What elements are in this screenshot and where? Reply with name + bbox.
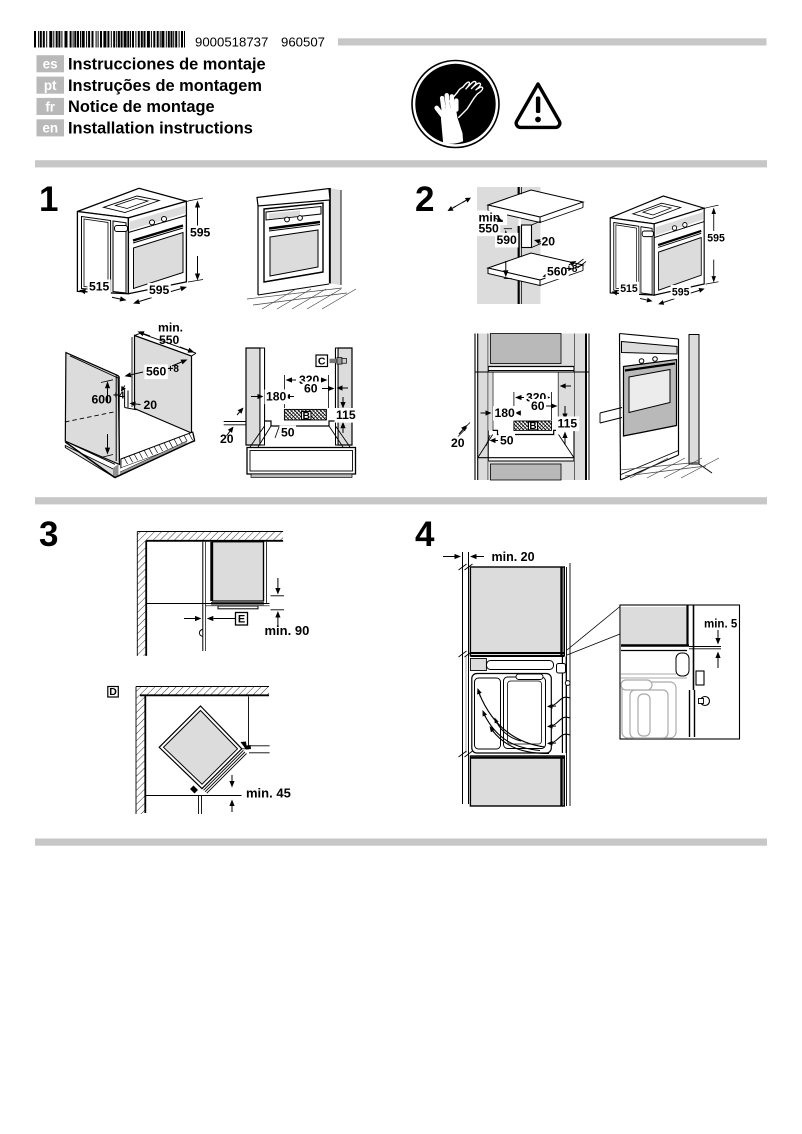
svg-text:180: 180 <box>266 390 287 404</box>
svg-text:Instruções de montagem: Instruções de montagem <box>68 77 262 95</box>
svg-text:595: 595 <box>707 232 725 245</box>
svg-text:Notice de montage: Notice de montage <box>68 98 215 116</box>
svg-text:+8: +8 <box>566 264 578 275</box>
svg-text:fr: fr <box>45 99 55 114</box>
svg-text:4: 4 <box>415 515 435 554</box>
svg-text:550: 550 <box>159 333 180 347</box>
svg-text:es: es <box>43 57 58 72</box>
svg-text:515: 515 <box>89 280 110 294</box>
svg-text:560: 560 <box>146 365 167 379</box>
svg-text:20: 20 <box>542 235 556 249</box>
svg-text:2: 2 <box>415 180 434 219</box>
svg-text:50: 50 <box>281 426 295 440</box>
svg-text:9000518737: 9000518737 <box>195 35 268 50</box>
svg-text:Installation instructions: Installation instructions <box>68 119 253 137</box>
svg-text:B: B <box>303 410 311 422</box>
svg-text:+8: +8 <box>168 364 180 375</box>
svg-text:pt: pt <box>44 78 57 93</box>
svg-text:595: 595 <box>149 283 170 297</box>
svg-text:20: 20 <box>451 436 465 450</box>
svg-text:115: 115 <box>558 417 578 431</box>
svg-text:180: 180 <box>495 406 516 420</box>
svg-text:60: 60 <box>531 399 545 413</box>
svg-text:min. 5: min. 5 <box>704 619 738 631</box>
svg-text:min. 45: min. 45 <box>246 786 291 801</box>
svg-text:115: 115 <box>336 408 356 422</box>
svg-text:20: 20 <box>144 398 158 412</box>
svg-text:1: 1 <box>39 180 58 219</box>
svg-text:3: 3 <box>39 515 58 554</box>
svg-text:Instrucciones de montaje: Instrucciones de montaje <box>68 55 266 73</box>
svg-text:60: 60 <box>304 382 318 396</box>
svg-text:D: D <box>109 686 117 698</box>
svg-text:min. 20: min. 20 <box>492 550 535 564</box>
svg-text:560: 560 <box>547 265 568 279</box>
svg-text:595: 595 <box>190 226 211 240</box>
svg-text:515: 515 <box>620 283 638 296</box>
svg-text:min. 90: min. 90 <box>265 623 310 638</box>
svg-text:20: 20 <box>220 432 234 446</box>
svg-text:E: E <box>238 613 245 625</box>
svg-text:50: 50 <box>500 434 514 448</box>
svg-text:en: en <box>42 121 58 136</box>
svg-text:590: 590 <box>497 233 518 247</box>
svg-text:600: 600 <box>92 393 113 407</box>
svg-text:C: C <box>318 356 326 368</box>
svg-text:+4: +4 <box>113 391 125 402</box>
svg-text:595: 595 <box>672 286 690 299</box>
svg-text:B: B <box>529 421 536 432</box>
svg-text:960507: 960507 <box>281 35 325 50</box>
